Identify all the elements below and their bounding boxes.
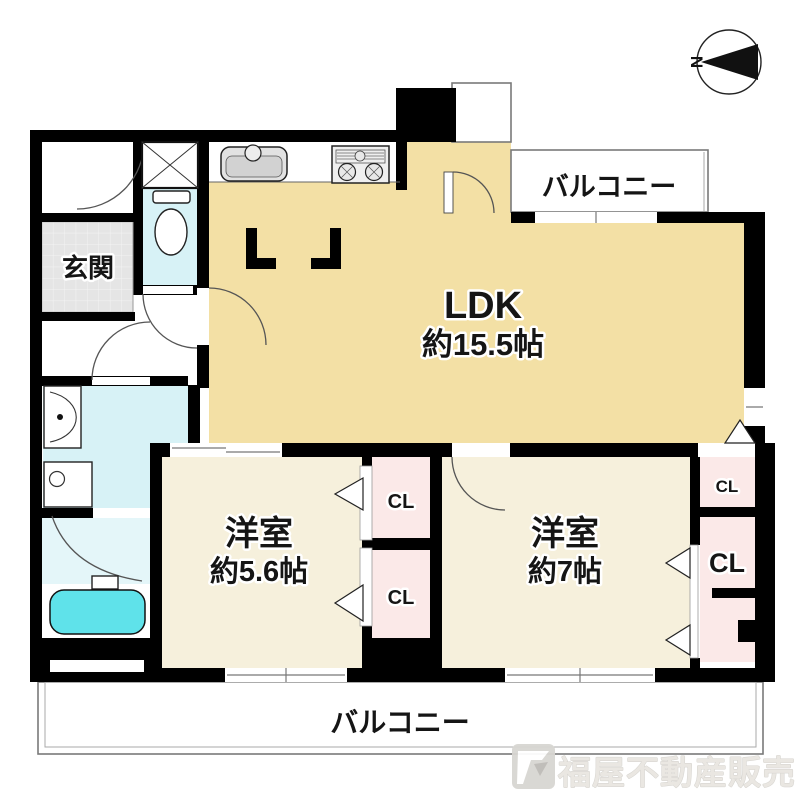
kitchen-wall-stub	[246, 258, 276, 269]
wall-segment	[372, 538, 430, 550]
bathroom-window-slot	[50, 660, 144, 672]
balcony-top-label: バルコニー	[542, 172, 676, 202]
ldk-floor	[209, 182, 400, 443]
kitchen-wall-stub	[330, 228, 341, 258]
door-opening	[452, 443, 510, 457]
closet-door-opening	[698, 443, 755, 457]
ldk-floor	[511, 223, 744, 443]
closet-label: CL	[716, 477, 739, 496]
closet-label: CL	[388, 587, 415, 609]
door-opening	[197, 288, 209, 345]
wall-segment	[36, 213, 135, 222]
wall-segment	[430, 443, 442, 682]
bedroom-large-label: 洋室	[531, 514, 599, 553]
wall-segment	[150, 443, 162, 682]
wall-segment	[372, 638, 430, 670]
wall-segment	[42, 508, 93, 518]
entrance-label: 玄関	[62, 253, 114, 283]
wall-segment	[700, 507, 755, 517]
wall-segment	[36, 312, 135, 321]
floor-plan-svg: 玄関 LDK 約15.5帖 洋室 約5.6帖 洋室 約7帖 CL CL CL C…	[0, 0, 800, 794]
toilet	[153, 191, 190, 255]
kitchen-wall-stub	[246, 228, 257, 258]
wall-segment	[690, 457, 700, 545]
wall-segment	[30, 130, 400, 142]
balcony-door-leaf	[444, 172, 453, 213]
bathroom-floor	[42, 518, 150, 584]
closet-label: CL	[709, 548, 745, 578]
wall-segment	[396, 88, 456, 142]
company-watermark-text: 福屋不動産販売	[557, 754, 796, 791]
bedroom-small-size-label: 約5.6帖	[210, 554, 308, 588]
sliding-door-opening	[170, 443, 282, 457]
wall-segment	[188, 385, 200, 443]
door-opening	[92, 377, 150, 385]
toilet-door-arc	[143, 294, 197, 348]
compass: N	[688, 30, 762, 94]
balcony-bottom-label: バルコニー	[330, 707, 469, 738]
kitchen-wall-stub	[311, 258, 341, 269]
balcony-top-notch	[452, 83, 511, 142]
closet-door-panel	[690, 545, 698, 658]
compass-north-label: N	[688, 56, 707, 68]
washbasin	[44, 386, 81, 448]
ldk-size-label: 約15.5帖	[422, 327, 544, 362]
bedroom-small-label: 洋室	[225, 514, 293, 553]
kitchen-sink	[221, 145, 287, 181]
wall-segment	[30, 130, 42, 682]
ldk-label: LDK	[444, 285, 523, 327]
wall-segment	[738, 620, 755, 642]
bedroom-large-size-label: 約7帖	[528, 554, 602, 588]
washroom-door-arc	[92, 322, 150, 380]
washing-machine	[44, 462, 92, 507]
wall-segment	[396, 142, 407, 190]
floor-plan-image: 玄関 LDK 約15.5帖 洋室 約5.6帖 洋室 約7帖 CL CL CL C…	[0, 0, 800, 794]
gas-stove	[332, 146, 389, 183]
closet-label: CL	[388, 491, 415, 513]
wall-segment	[755, 445, 775, 682]
wall-segment	[690, 658, 700, 682]
wall-segment	[712, 588, 775, 598]
door-opening	[143, 286, 193, 294]
shaft-box	[142, 142, 198, 188]
